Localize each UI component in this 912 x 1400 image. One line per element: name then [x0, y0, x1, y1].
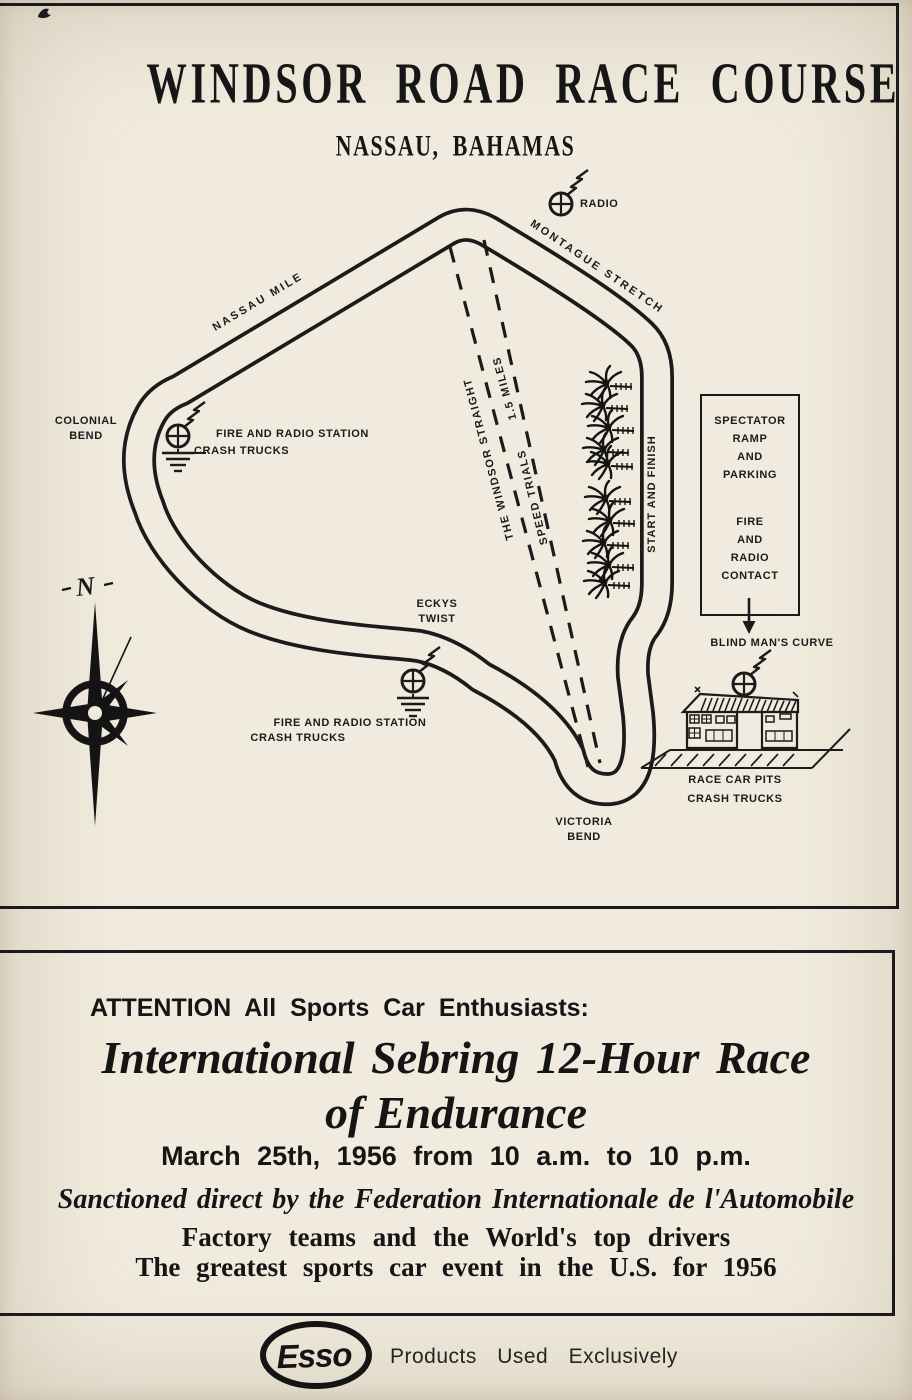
- label-race-car-pits: RACE CAR PITS CRASH TRUCKS: [687, 771, 782, 809]
- page-title: WINDSOR ROAD RACE COURSE: [0, 52, 912, 116]
- esso-logo-text: Esso: [276, 1336, 352, 1377]
- pits-parking-apron: [641, 729, 850, 768]
- compass-rose: [33, 583, 157, 826]
- spectator-ramp-box: SPECTATOR RAMP AND PARKING FIRE AND RADI…: [700, 394, 800, 616]
- esso-tagline: Products Used Exclusively: [390, 1345, 678, 1369]
- ad-sanction-line: Sanctioned direct by the Federation Inte…: [0, 1184, 912, 1216]
- ad-headline-line1: International Sebring 12-Hour Race: [0, 1031, 912, 1084]
- ink-smudge: [38, 9, 51, 18]
- ad-teams-line: Factory teams and the World's top driver…: [0, 1222, 912, 1253]
- course-location: NASSAU, BAHAMAS: [336, 130, 576, 164]
- ad-date-line: March 25th, 1956 from 10 a.m. to 10 p.m.: [0, 1141, 912, 1172]
- label-station-west-line1: FIRE AND RADIO STATION: [216, 428, 369, 440]
- label-colonial-bend: COLONIAL BEND: [55, 414, 117, 444]
- label-start-finish: START AND FINISH: [646, 435, 658, 552]
- label-radio: RADIO: [580, 198, 618, 210]
- pits-building: [683, 650, 798, 748]
- scanned-program-page: WINDSOR ROAD RACE COURSE NASSAU, BAHAMAS…: [0, 0, 912, 1400]
- label-blind-mans-curve: BLIND MAN'S CURVE: [710, 637, 833, 649]
- ad-headline-line2: of Endurance: [0, 1086, 912, 1139]
- compass-north-label: N: [74, 571, 96, 603]
- palm-trees-south: [583, 481, 635, 598]
- page-subtitle: NASSAU, BAHAMAS: [0, 131, 912, 163]
- label-station-west-line2: CRASH TRUCKS: [194, 445, 289, 457]
- race-track-outline: [139, 225, 657, 789]
- course-title: WINDSOR ROAD RACE COURSE: [147, 51, 901, 118]
- palm-trees-north: [582, 366, 634, 479]
- label-station-south-line2: CRASH TRUCKS: [250, 732, 345, 744]
- label-victoria-bend: VICTORIA BEND: [555, 815, 612, 845]
- ad-event-line: The greatest sports car event in the U.S…: [0, 1252, 912, 1283]
- label-station-south-line1: FIRE AND RADIO STATION: [274, 717, 427, 729]
- label-eckys-twist: ECKYS TWIST: [417, 597, 458, 627]
- ad-attention-line: ATTENTION All Sports Car Enthusiasts:: [90, 994, 589, 1023]
